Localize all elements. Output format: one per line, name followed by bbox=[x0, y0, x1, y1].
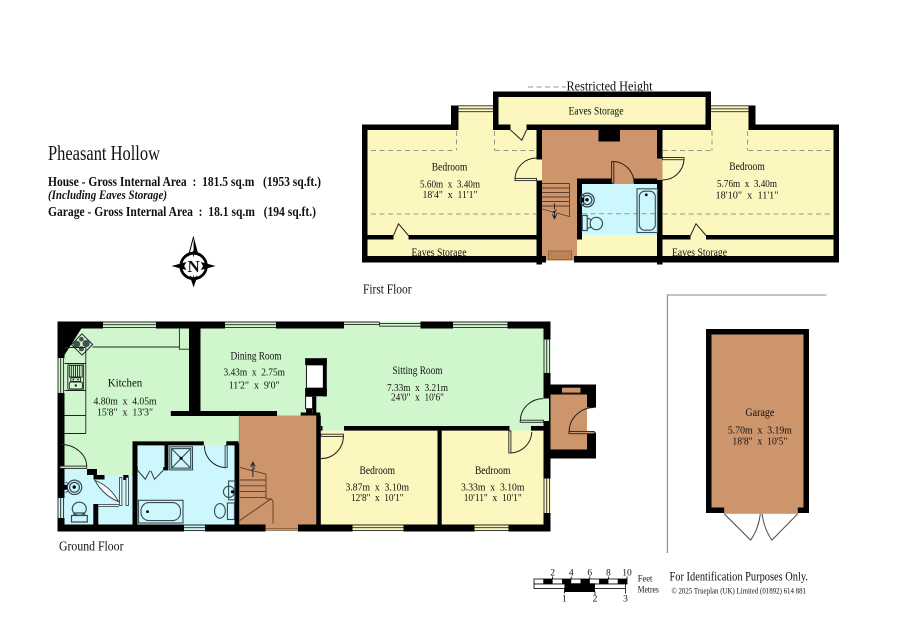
svg-text:Garage: Garage bbox=[745, 407, 774, 419]
svg-text:5.76m x 3.40m: 5.76m x 3.40m bbox=[717, 178, 777, 190]
svg-text:2: 2 bbox=[550, 569, 555, 579]
svg-text:18'10" x 11'1": 18'10" x 11'1" bbox=[716, 190, 779, 202]
svg-text:10: 10 bbox=[622, 569, 632, 579]
svg-text:Garage - Gross Internal Area: Garage - Gross Internal Area : 18.1 sq.m… bbox=[48, 204, 316, 219]
svg-text:Sitting Room: Sitting Room bbox=[393, 365, 443, 377]
svg-text:Bedroom: Bedroom bbox=[475, 465, 511, 477]
svg-text:6: 6 bbox=[587, 569, 592, 579]
svg-text:15'8" x 13'3": 15'8" x 13'3" bbox=[97, 406, 153, 418]
svg-text:(Including Eaves Storage): (Including Eaves Storage) bbox=[48, 187, 167, 202]
svg-text:For Identification Purposes On: For Identification Purposes Only. bbox=[670, 570, 809, 584]
svg-text:Metres: Metres bbox=[638, 586, 659, 596]
svg-text:Dining Room: Dining Room bbox=[231, 350, 282, 362]
svg-text:10'11" x 10'1": 10'11" x 10'1" bbox=[464, 492, 522, 504]
svg-text:3: 3 bbox=[623, 595, 628, 605]
svg-text:Eaves Storage: Eaves Storage bbox=[412, 247, 467, 259]
svg-text:Ground Floor: Ground Floor bbox=[59, 539, 124, 554]
svg-text:© 2025 Trueplan (UK) Limited: © 2025 Trueplan (UK) Limited (01892) 614… bbox=[672, 586, 807, 596]
svg-text:Pheasant Hollow: Pheasant Hollow bbox=[48, 141, 160, 165]
svg-text:4: 4 bbox=[569, 569, 574, 579]
svg-text:1: 1 bbox=[562, 595, 567, 605]
svg-text:11'2" x 9'0": 11'2" x 9'0" bbox=[229, 379, 280, 391]
svg-text:18'4" x 11'1": 18'4" x 11'1" bbox=[423, 189, 478, 201]
svg-text:N: N bbox=[187, 257, 200, 276]
svg-text:8: 8 bbox=[606, 569, 611, 579]
svg-text:12'8" x 10'1": 12'8" x 10'1" bbox=[351, 492, 404, 504]
svg-text:Eaves Storage: Eaves Storage bbox=[672, 247, 727, 259]
svg-text:3.43m x 2.75m: 3.43m x 2.75m bbox=[223, 367, 285, 379]
svg-text:2: 2 bbox=[593, 595, 598, 605]
svg-text:18'8" x 10'5": 18'8" x 10'5" bbox=[732, 435, 787, 447]
svg-text:Bedroom: Bedroom bbox=[360, 465, 396, 477]
svg-text:Kitchen: Kitchen bbox=[108, 378, 143, 390]
svg-text:Restricted Height: Restricted Height bbox=[567, 79, 653, 94]
svg-text:Bedroom: Bedroom bbox=[729, 161, 765, 173]
svg-text:Feet: Feet bbox=[638, 575, 653, 585]
svg-text:Eaves Storage: Eaves Storage bbox=[569, 106, 624, 118]
svg-text:24'0" x 10'6": 24'0" x 10'6" bbox=[391, 392, 444, 404]
svg-text:First Floor: First Floor bbox=[363, 282, 412, 297]
svg-text:Bedroom: Bedroom bbox=[432, 162, 468, 174]
